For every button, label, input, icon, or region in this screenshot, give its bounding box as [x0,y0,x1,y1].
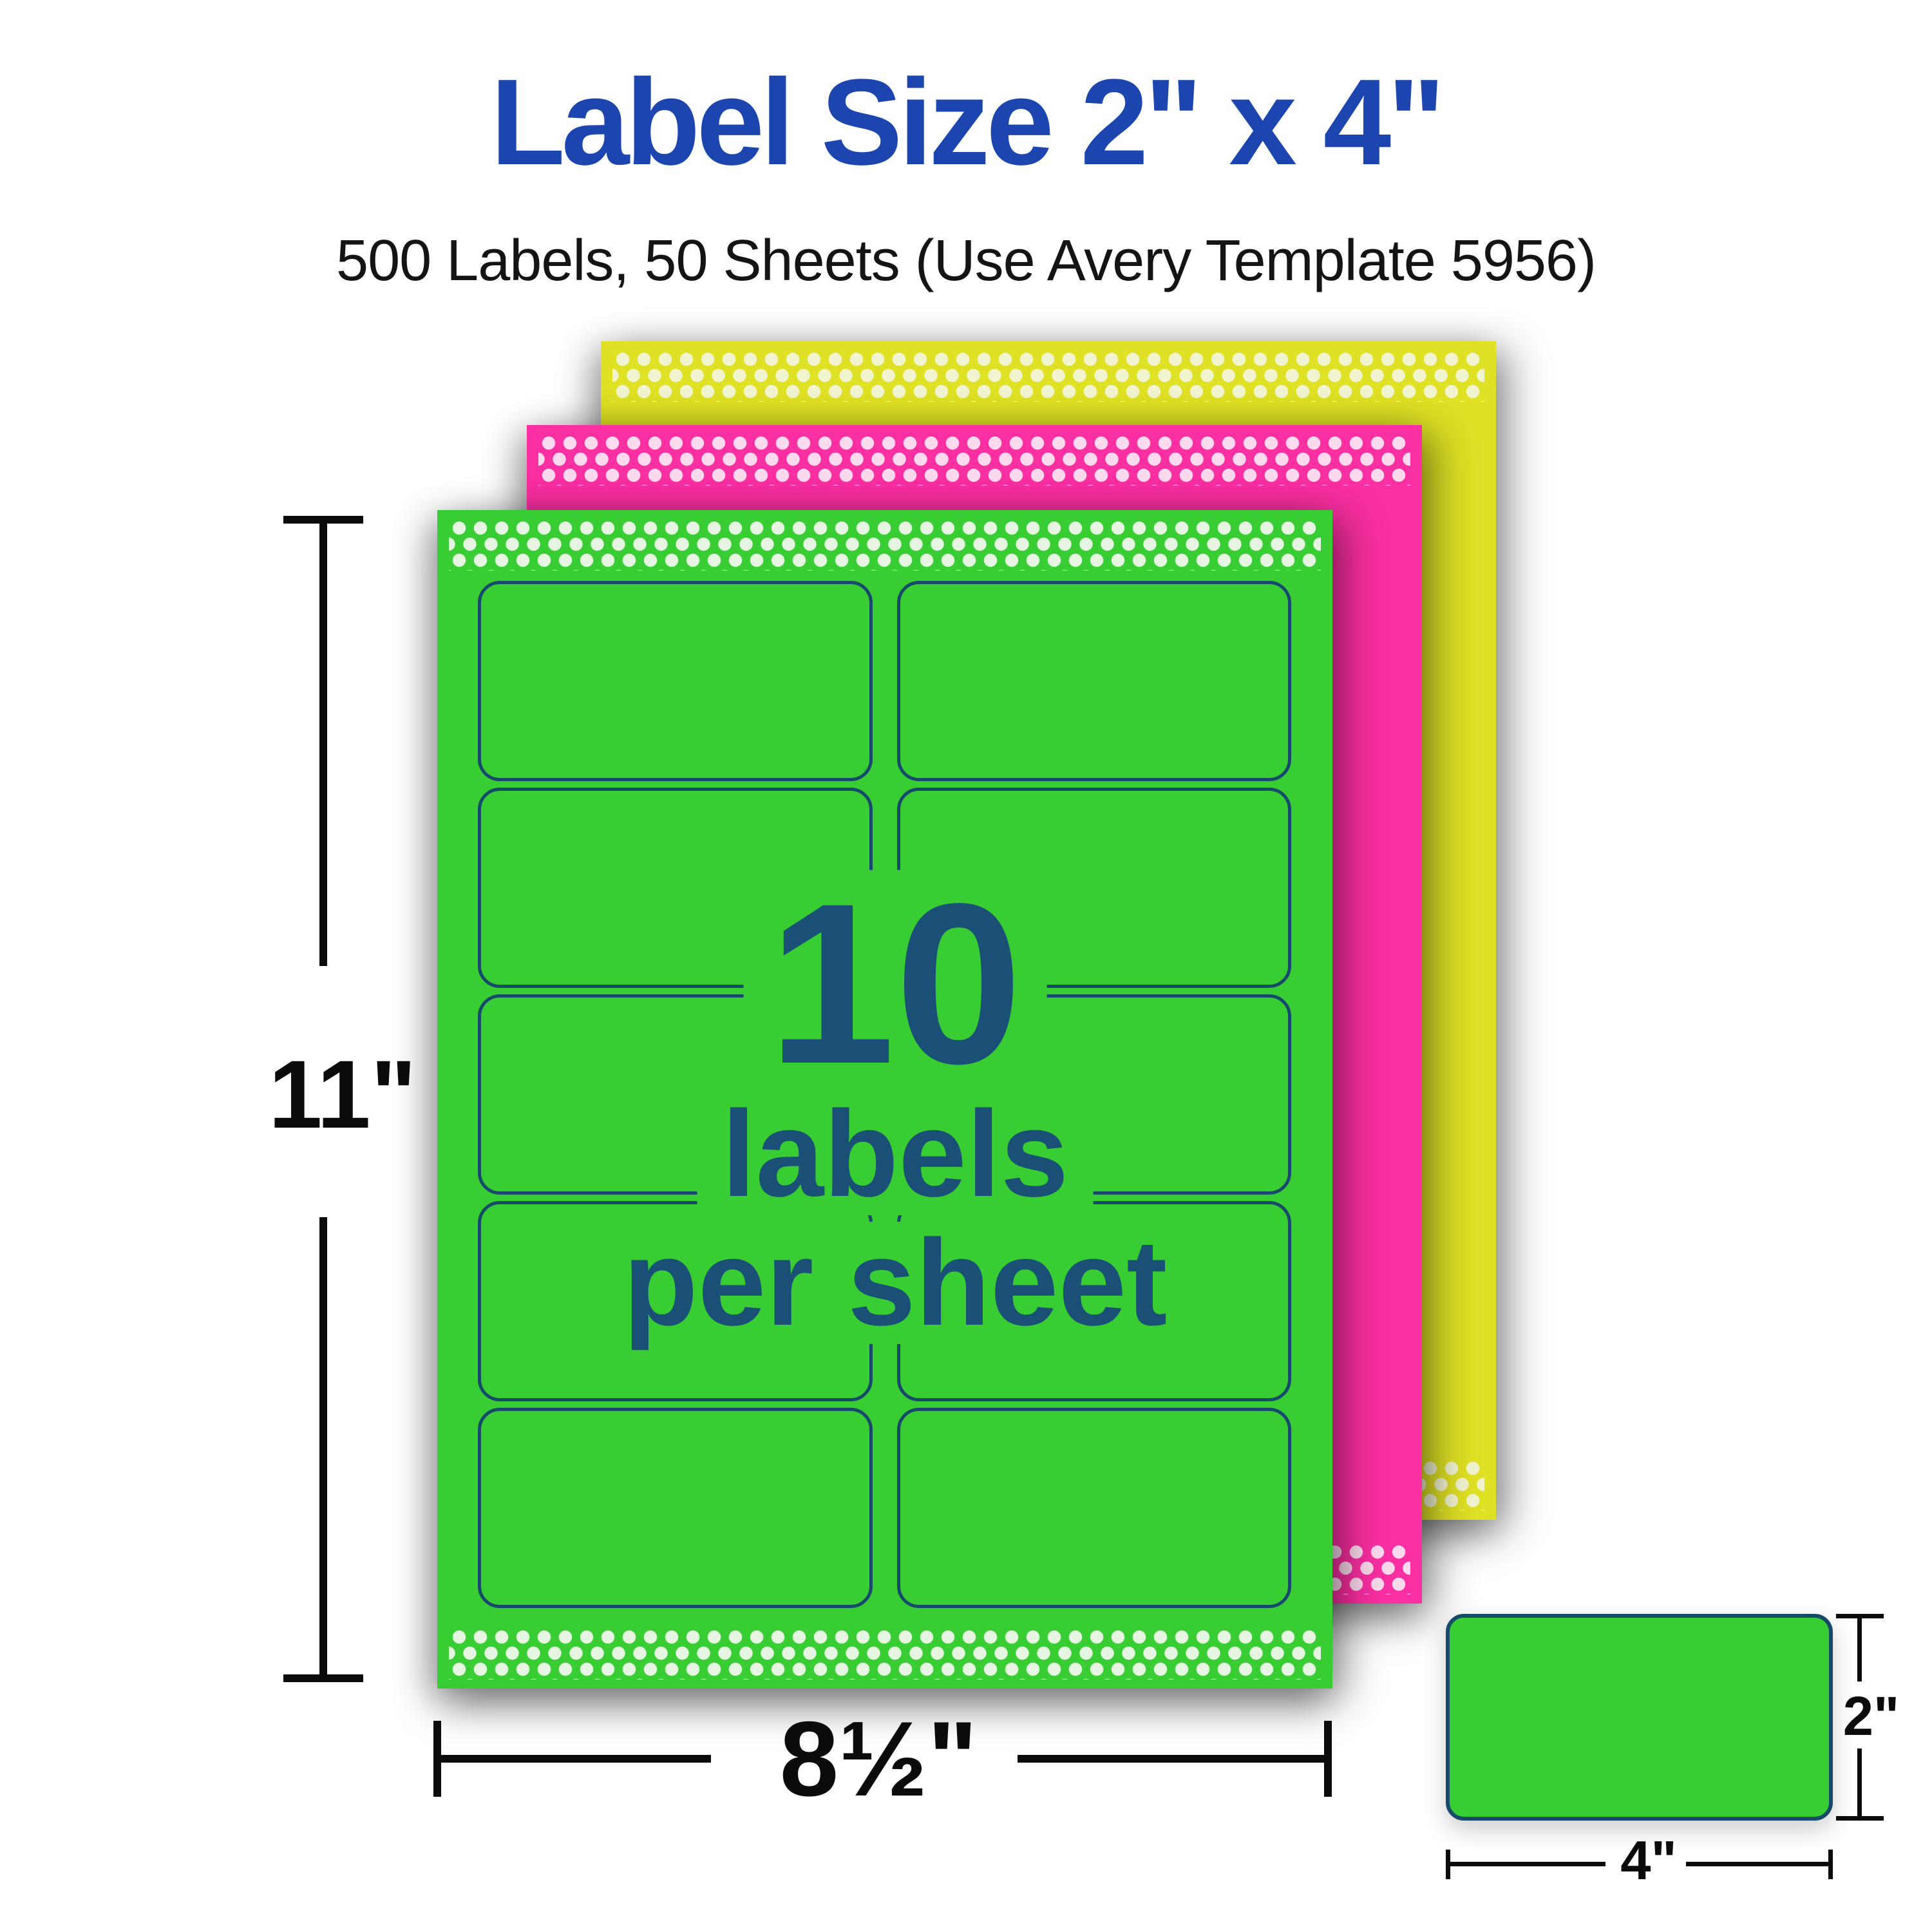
label-cell [897,581,1292,781]
dimension-cap [1324,1721,1332,1797]
label-height-dimension: 2" [1836,1614,1884,1821]
sheet-width-label: 8½" [780,1706,978,1812]
sheet-height-dimension: 11" [283,516,363,1682]
polka-dot-band-bottom [449,1628,1321,1680]
dimension-cap [433,1721,441,1797]
dimension-line [319,1217,327,1674]
per-sheet-words: per sheet [599,1222,1192,1344]
dimension-cap [1828,1850,1833,1879]
dimension-cap [1836,1816,1884,1821]
page-title: Label Size 2" x 4" [0,61,1932,184]
single-label-swatch [1446,1614,1833,1821]
labels-word: labels [697,1093,1094,1215]
dimension-line [1686,1862,1828,1866]
dimension-line [1450,1862,1605,1866]
polka-dot-band-top [538,434,1410,486]
dimension-line [441,1755,711,1763]
sheet-height-label: 11" [269,1046,417,1142]
label-height-label: 2" [1843,1689,1900,1744]
dimension-line [1857,1748,1862,1816]
polka-dot-band-top [449,519,1321,571]
label-width-label: 4" [1620,1833,1677,1888]
dimension-line [1857,1618,1862,1681]
label-cell [478,581,873,781]
label-width-dimension: 4" [1446,1850,1833,1879]
label-cell [897,1408,1292,1608]
dimension-cap [1836,1614,1884,1618]
subtitle: 500 Labels, 50 Sheets (Use Avery Templat… [0,232,1932,290]
label-cell [478,1408,873,1608]
labels-per-sheet-callout: 10 labels per sheet [599,870,1192,1344]
dimension-line [1018,1755,1324,1763]
dimension-cap [283,516,363,524]
sheet-width-dimension: 8½" [433,1721,1332,1797]
polka-dot-band-top [612,350,1484,402]
labels-count: 10 [744,870,1047,1099]
dimension-cap [1446,1850,1450,1879]
product-illustration: Label Size 2" x 4" 500 Labels, 50 Sheets… [0,0,1932,1932]
dimension-cap [283,1674,363,1682]
sheet-green: 10 labels per sheet [437,510,1332,1689]
dimension-line [319,524,327,966]
